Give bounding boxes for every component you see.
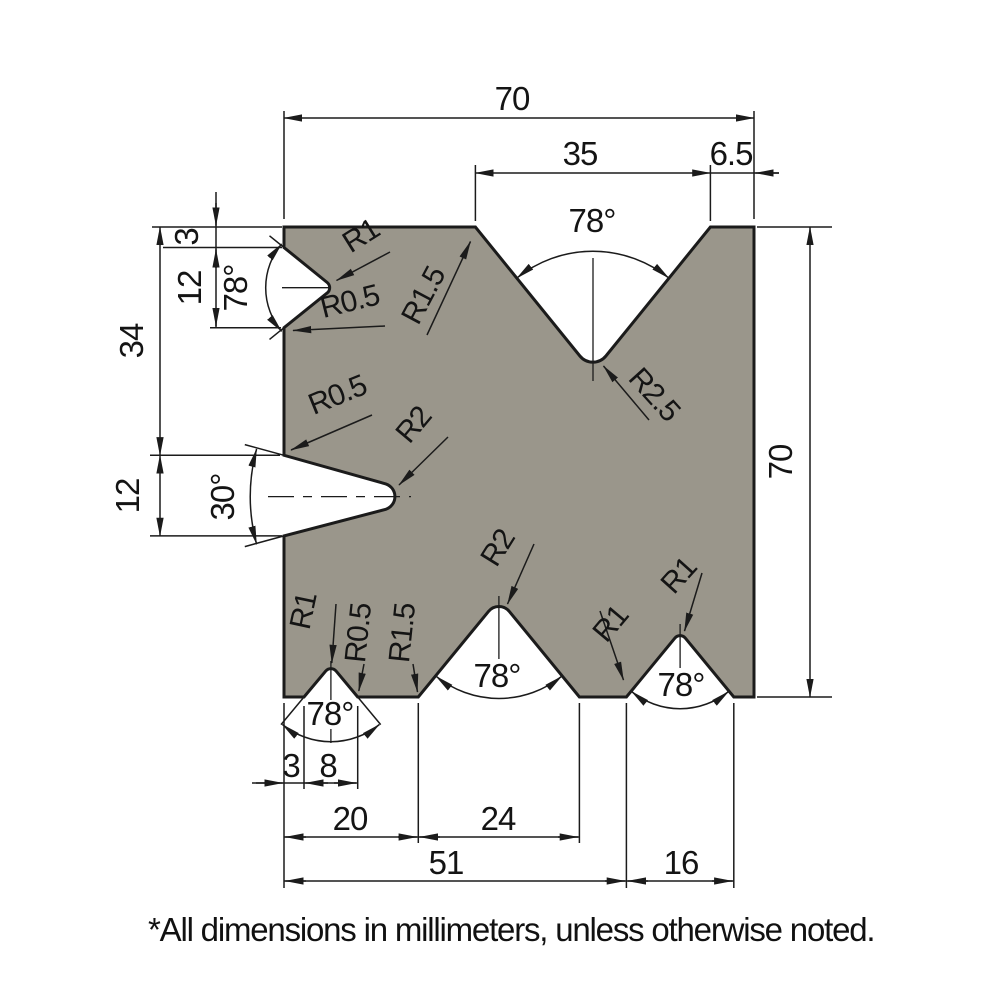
dim-top-v-width: 35 [563,135,598,172]
dim-left-mid-offset: 34 [113,323,150,358]
dim-top-right-offset: 6.5 [710,135,753,172]
dim-bottom-mid-offset: 20 [333,800,368,837]
dim-bottom-small-offset: 3 [282,747,299,784]
dim-left-top-offset: 3 [168,228,205,245]
dim-bottom-right-width: 16 [664,844,699,881]
dim-width-total: 70 [495,80,530,117]
dim-bottom-small-width: 8 [319,747,336,784]
angle-bottom-right-v: 78° [658,666,705,703]
footnote: *All dimensions in millimeters, unless o… [148,911,874,948]
drawing-page: 70 35 6.5 3 12 34 12 70 3 8 20 24 51 16 … [0,0,996,1000]
angle-left-notch: 78° [217,265,254,312]
angle-bottom-mid-v: 78° [474,657,521,694]
dim-bottom-mid-width: 24 [481,800,516,837]
angle-lower-left-notch: 30° [204,474,241,521]
angle-top-v: 78° [569,202,616,239]
dim-bottom-right-offset: 51 [429,844,464,881]
dim-left-notch-height: 12 [171,271,208,306]
radius-bottom-small-corner: R0.5 [339,601,378,664]
technical-drawing: 70 35 6.5 3 12 34 12 70 3 8 20 24 51 16 … [0,0,996,1000]
dim-height-total: 70 [762,444,799,479]
dim-left-lower-height: 12 [109,479,146,514]
radius-bottom-mid-corner: R1.5 [383,601,422,664]
angle-bottom-small-v: 78° [307,695,354,732]
